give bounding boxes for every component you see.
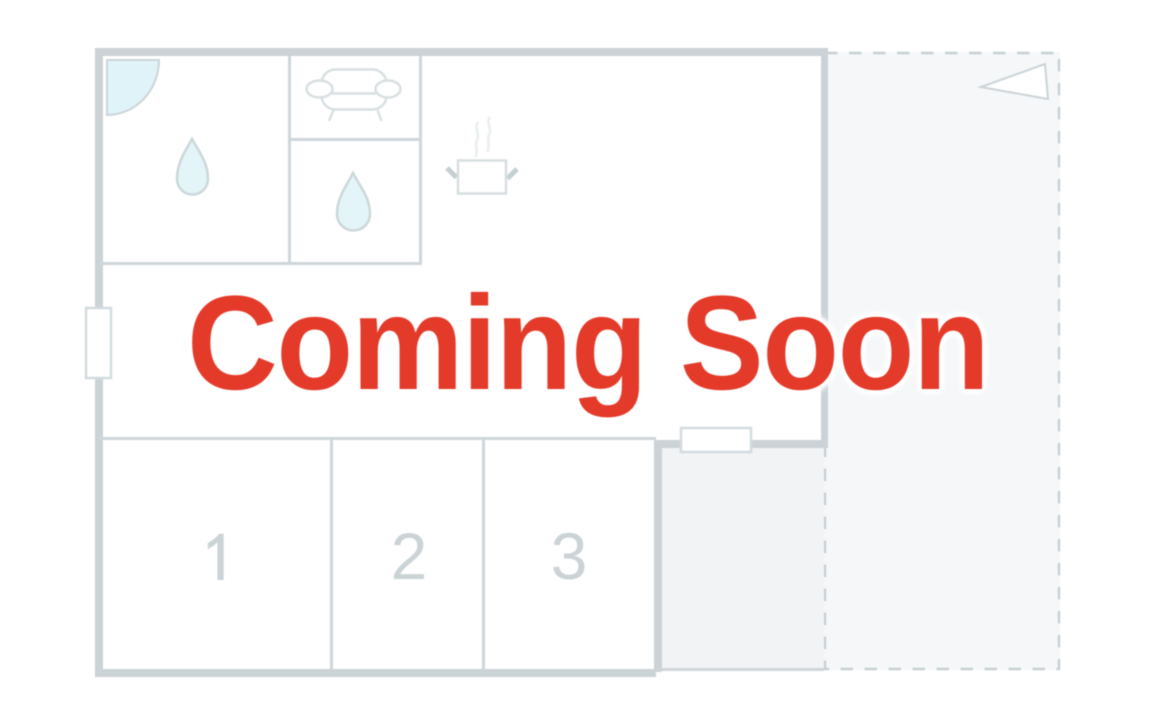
svg-text:3: 3 [551, 519, 588, 593]
svg-text:2: 2 [391, 519, 428, 593]
